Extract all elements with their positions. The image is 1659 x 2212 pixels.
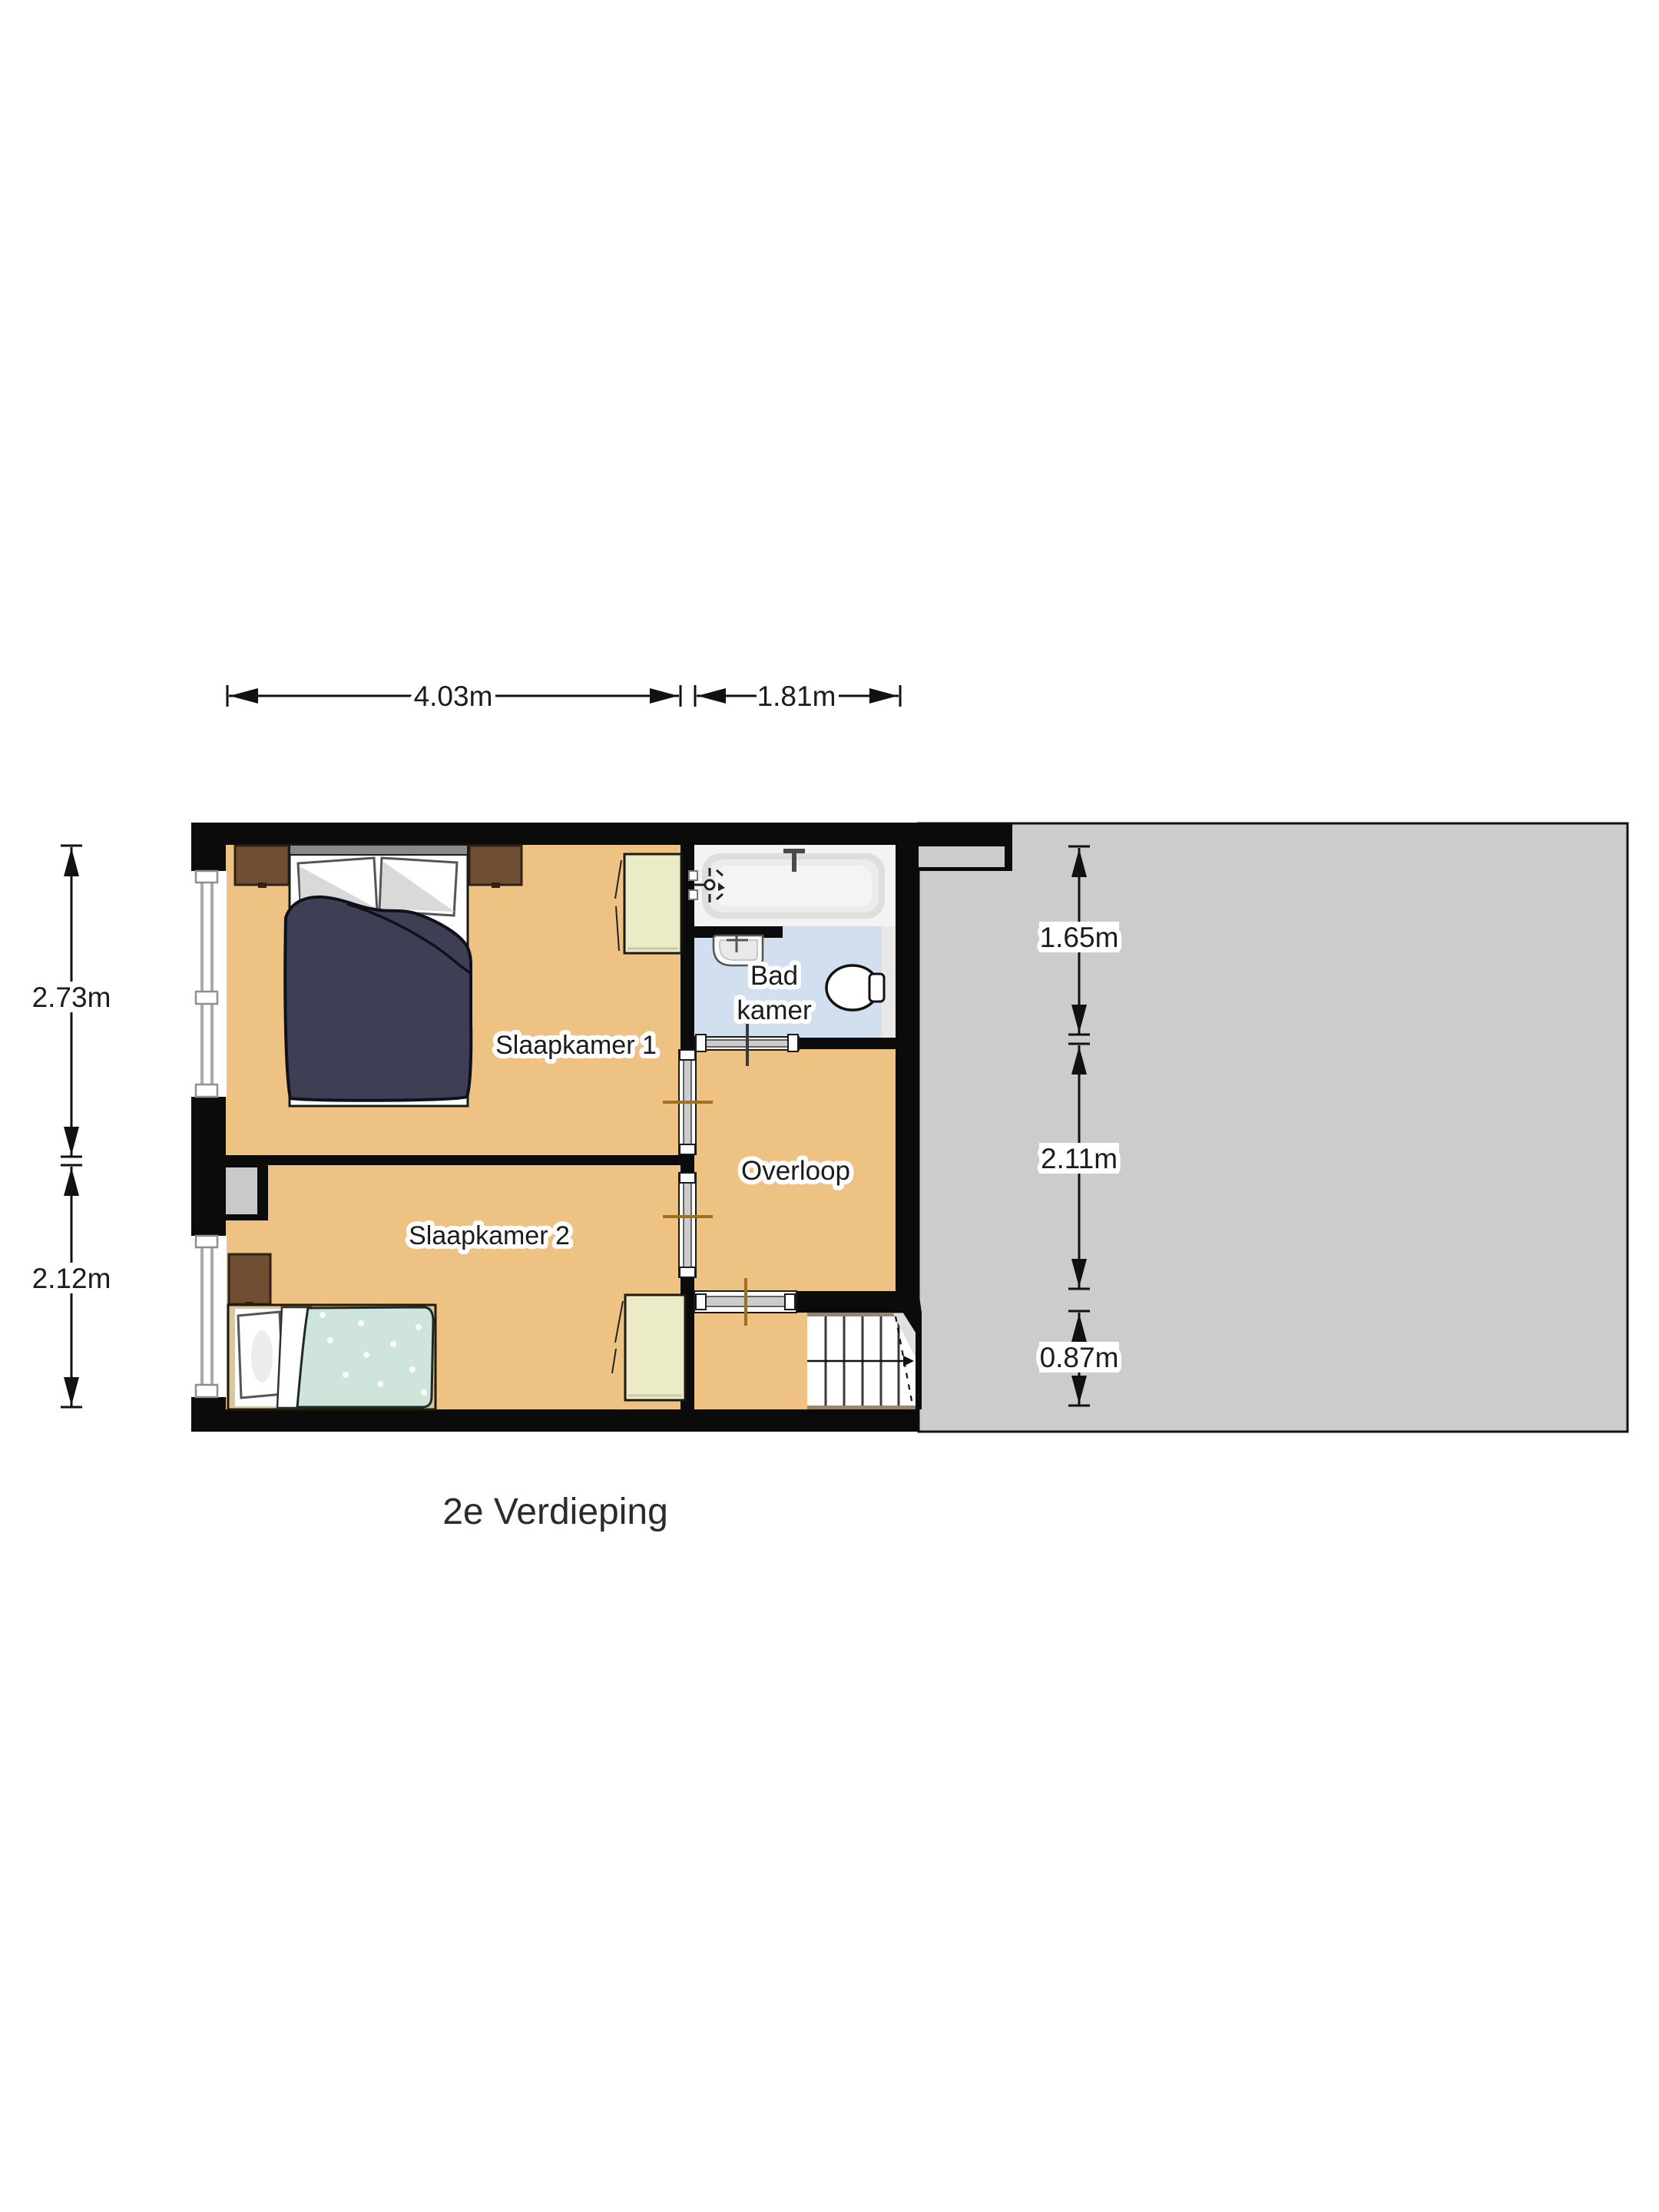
svg-text:Slaapkamer 1: Slaapkamer 1 xyxy=(495,1031,657,1060)
svg-text:2.73m: 2.73m xyxy=(32,982,111,1013)
svg-text:1.81m: 1.81m xyxy=(757,680,836,712)
svg-text:2.12m: 2.12m xyxy=(32,1263,111,1294)
svg-text:4.03m: 4.03m xyxy=(414,680,493,712)
svg-text:Bad: Bad xyxy=(750,961,798,991)
svg-text:0.87m: 0.87m xyxy=(1040,1342,1119,1373)
svg-text:Slaapkamer 2: Slaapkamer 2 xyxy=(409,1221,570,1250)
svg-text:2e Verdieping: 2e Verdieping xyxy=(442,1492,668,1532)
svg-text:2.11m: 2.11m xyxy=(1041,1143,1118,1174)
svg-text:Overloop: Overloop xyxy=(741,1156,850,1186)
svg-text:1.65m: 1.65m xyxy=(1040,922,1119,953)
svg-text:kamer: kamer xyxy=(737,995,812,1025)
